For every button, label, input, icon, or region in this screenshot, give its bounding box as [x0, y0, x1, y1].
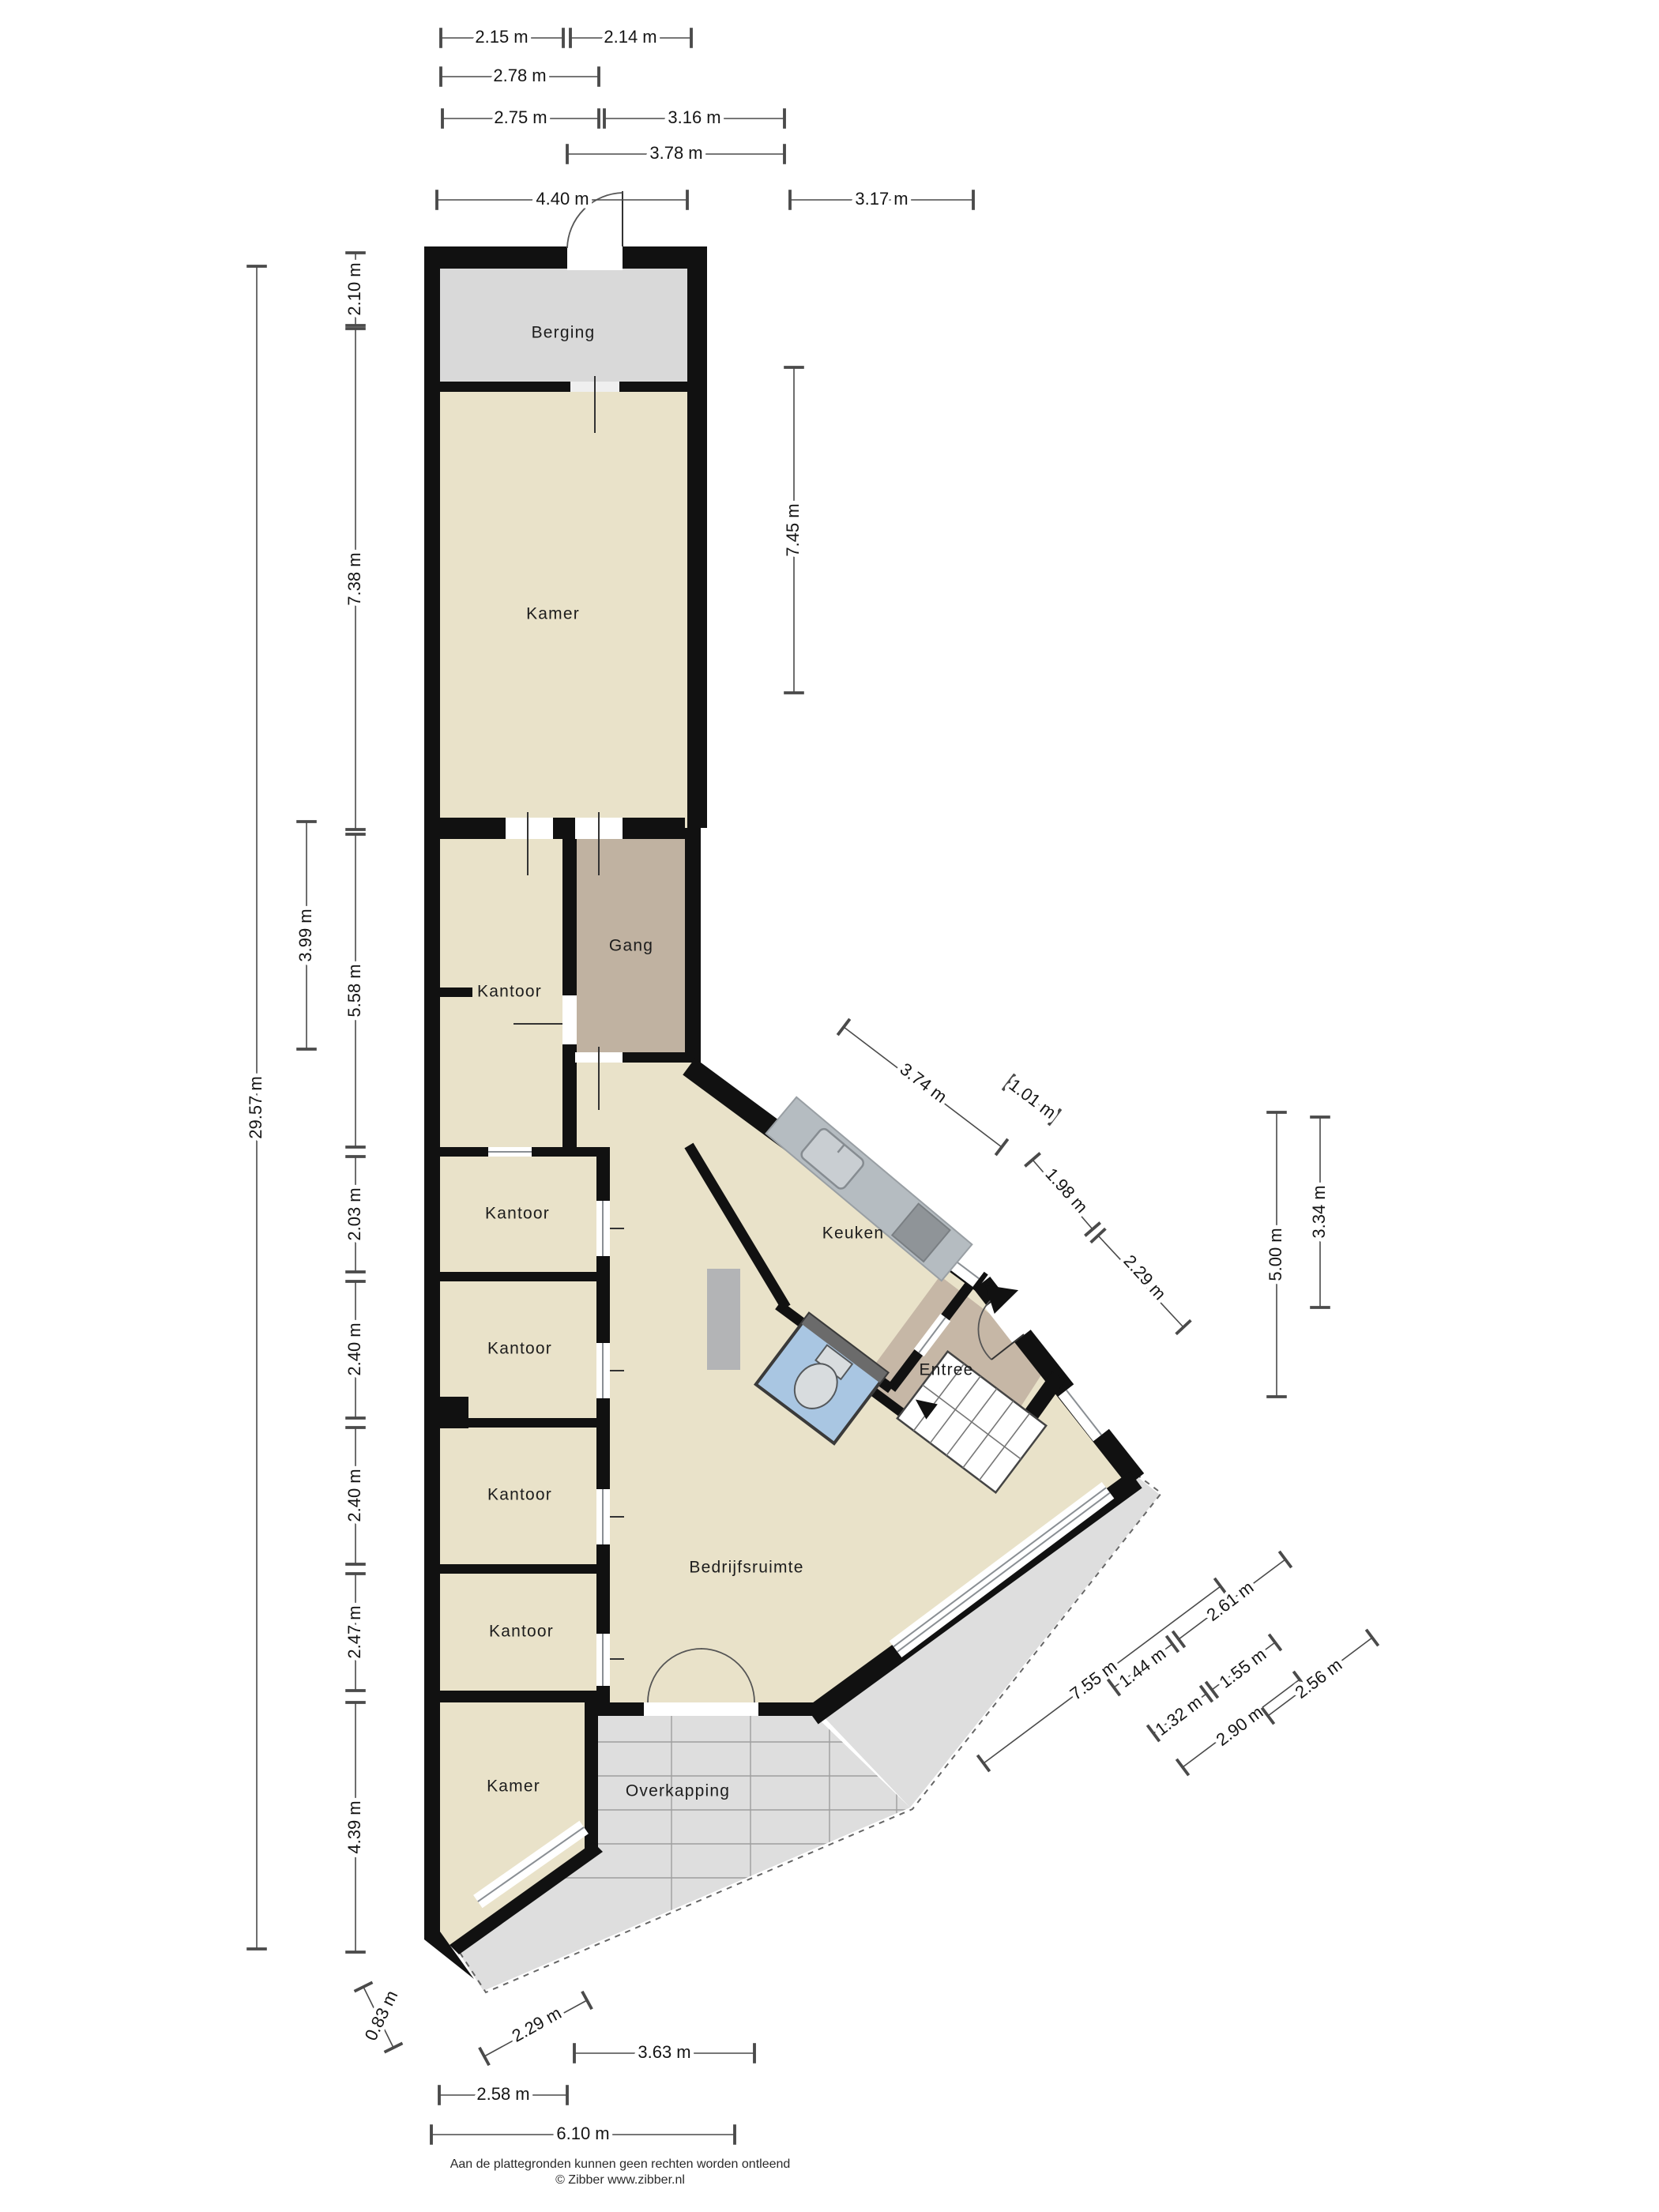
room-label-kamer-top: Kamer	[526, 605, 580, 623]
floorplan-canvas: Berging Kamer Kantoor Gang Kantoor Kanto…	[0, 0, 1659, 2212]
dim-top-316: 3.16 m	[604, 107, 784, 127]
dim-top-215: 2.15 m	[441, 27, 563, 47]
dim-left-240a: 2.40 m	[344, 1281, 364, 1418]
berging-door-opening	[567, 245, 623, 270]
dim-ne-229: 2.29 m	[1098, 1236, 1183, 1327]
svg-text:2.56 m: 2.56 m	[1292, 1654, 1346, 1702]
dim-left-2957: 29.57 m	[246, 266, 265, 1949]
svg-text:2.29 m: 2.29 m	[1119, 1251, 1170, 1304]
svg-text:3.17 m: 3.17 m	[855, 189, 908, 209]
dimensions-bottom: 0.83 m 2.29 m 3.63 m 2.58 m 6.10 m	[361, 1987, 754, 2143]
svg-text:3.99 m: 3.99 m	[295, 908, 315, 961]
room-label-kamer-bottom: Kamer	[487, 1777, 540, 1796]
svg-text:2.40 m: 2.40 m	[344, 1322, 364, 1375]
dim-left-558: 5.58 m	[344, 834, 364, 1147]
svg-text:1.55 m: 1.55 m	[1216, 1644, 1270, 1691]
svg-text:2.03 m: 2.03 m	[344, 1187, 364, 1240]
dim-mid-745: 7.45 m	[783, 367, 803, 693]
kantoor-gang-wall	[562, 839, 577, 1147]
svg-text:2.58 m: 2.58 m	[476, 2084, 529, 2104]
office-divider-4	[440, 1564, 598, 1574]
dim-left-210: 2.10 m	[344, 253, 364, 325]
dim-right-334: 3.34 m	[1309, 1117, 1329, 1307]
svg-text:6.10 m: 6.10 m	[556, 2124, 609, 2143]
dim-left-439: 4.39 m	[344, 1702, 364, 1952]
kamer-bottom-right-wall	[585, 1702, 598, 1853]
dim-top-214: 2.14 m	[570, 27, 691, 47]
dim-ne-101: 1.01 m	[1006, 1074, 1060, 1122]
svg-text:2.75 m: 2.75 m	[494, 107, 547, 127]
dim-ne-374: 3.74 m	[844, 1027, 1002, 1147]
room-label-entree: Entree	[919, 1361, 973, 1379]
dim-top-378: 3.78 m	[567, 143, 784, 163]
dim-left-399: 3.99 m	[295, 822, 315, 1049]
dim-se-261: 2.61 m	[1179, 1559, 1285, 1639]
dim-bottom-610: 6.10 m	[431, 2124, 735, 2143]
svg-text:0.83 m: 0.83 m	[361, 1988, 402, 2044]
kantoor1-gang-opening	[562, 995, 577, 1044]
svg-text:2.40 m: 2.40 m	[344, 1469, 364, 1522]
footer-disclaimer: Aan de plattegronden kunnen geen rechten…	[450, 2157, 791, 2171]
left-wall-stub	[440, 987, 472, 997]
dim-top-440: 4.40 m	[437, 189, 687, 209]
top-wall	[424, 246, 707, 269]
svg-text:5.00 m: 5.00 m	[1266, 1228, 1285, 1281]
svg-text:2.15 m: 2.15 m	[475, 27, 528, 47]
left-wall-jog	[440, 1397, 468, 1428]
svg-text:2.61 m: 2.61 m	[1203, 1577, 1258, 1624]
room-label-bedrijfsruimte: Bedrijfsruimte	[689, 1559, 803, 1577]
right-wall-upper	[687, 246, 707, 828]
office-divider-5	[440, 1691, 598, 1702]
dimensions-top: 2.15 m 2.14 m 2.78 m 2.75 m 3.16 m 3.78 …	[437, 27, 973, 209]
svg-text:2.47 m: 2.47 m	[344, 1605, 364, 1658]
footer: Aan de plattegronden kunnen geen rechten…	[450, 2157, 791, 2187]
svg-text:3.78 m: 3.78 m	[649, 143, 702, 163]
kamer-kantoor-opening	[506, 818, 553, 839]
svg-text:4.39 m: 4.39 m	[344, 1800, 364, 1853]
svg-text:7.45 m: 7.45 m	[783, 503, 803, 556]
dim-left-240b: 2.40 m	[344, 1428, 364, 1564]
french-doors-opening	[644, 1702, 758, 1716]
svg-text:7.55 m: 7.55 m	[1066, 1656, 1121, 1703]
svg-text:29.57 m: 29.57 m	[246, 1076, 265, 1139]
room-label-kantoor-2: Kantoor	[485, 1205, 550, 1223]
dim-left-738: 7.38 m	[344, 329, 364, 829]
dim-se-290: 2.90 m	[1183, 1680, 1300, 1767]
dim-ne-198: 1.98 m	[1033, 1160, 1093, 1229]
gang-right-wall	[685, 828, 701, 1063]
svg-text:2.29 m: 2.29 m	[509, 2003, 565, 2045]
dim-bottom-083: 0.83 m	[361, 1987, 402, 2048]
dim-top-317: 3.17 m	[790, 189, 973, 209]
svg-text:1.98 m: 1.98 m	[1041, 1164, 1092, 1217]
room-label-overkapping: Overkapping	[626, 1782, 730, 1800]
berging-kamer-wall	[440, 382, 687, 392]
dim-se-144: 1.44 m	[1114, 1643, 1172, 1691]
svg-text:5.58 m: 5.58 m	[344, 964, 364, 1017]
dim-left-203: 2.03 m	[344, 1157, 364, 1272]
dim-top-278: 2.78 m	[441, 66, 599, 85]
dim-bottom-229: 2.29 m	[484, 2000, 587, 2056]
dim-top-275: 2.75 m	[442, 107, 599, 127]
svg-text:2.90 m: 2.90 m	[1213, 1702, 1267, 1749]
footer-copyright: © Zibber www.zibber.nl	[555, 2173, 685, 2187]
pillar	[707, 1269, 740, 1370]
dim-left-247: 2.47 m	[344, 1574, 364, 1691]
dim-right-500: 5.00 m	[1266, 1112, 1285, 1397]
svg-text:2.14 m: 2.14 m	[604, 27, 656, 47]
svg-text:1.32 m: 1.32 m	[1152, 1691, 1206, 1739]
dim-bottom-258: 2.58 m	[439, 2084, 567, 2104]
dim-se-155: 1.55 m	[1212, 1642, 1275, 1692]
svg-text:2.78 m: 2.78 m	[493, 66, 546, 85]
room-label-keuken: Keuken	[822, 1224, 884, 1243]
dimensions-left: 2.10 m 7.38 m 29.57 m 3.99 m 5.58 m 2.03…	[246, 253, 364, 1952]
svg-text:7.38 m: 7.38 m	[344, 552, 364, 605]
room-label-gang: Gang	[609, 937, 653, 955]
office-divider-2	[440, 1272, 598, 1281]
svg-text:3.74 m: 3.74 m	[897, 1059, 951, 1106]
svg-text:1.01 m: 1.01 m	[1006, 1074, 1060, 1122]
svg-text:3.63 m: 3.63 m	[638, 2042, 690, 2062]
room-label-kantoor-5: Kantoor	[489, 1623, 554, 1641]
svg-text:4.40 m: 4.40 m	[536, 189, 589, 209]
room-label-kantoor-1: Kantoor	[477, 983, 542, 1001]
svg-text:3.16 m: 3.16 m	[668, 107, 720, 127]
dim-se-132: 1.32 m	[1152, 1691, 1206, 1739]
dim-se-256: 2.56 m	[1268, 1638, 1372, 1716]
room-label-kantoor-3: Kantoor	[487, 1340, 552, 1358]
dim-bottom-363: 3.63 m	[574, 2042, 754, 2062]
room-label-berging: Berging	[532, 324, 596, 342]
kamer-kantoor-wall	[440, 818, 685, 839]
svg-text:2.10 m: 2.10 m	[344, 262, 364, 315]
room-label-kantoor-4: Kantoor	[487, 1486, 552, 1504]
svg-text:1.44 m: 1.44 m	[1115, 1643, 1170, 1691]
svg-text:3.34 m: 3.34 m	[1309, 1185, 1329, 1238]
floorplan-page: Berging Kamer Kantoor Gang Kantoor Kanto…	[0, 0, 1659, 2212]
